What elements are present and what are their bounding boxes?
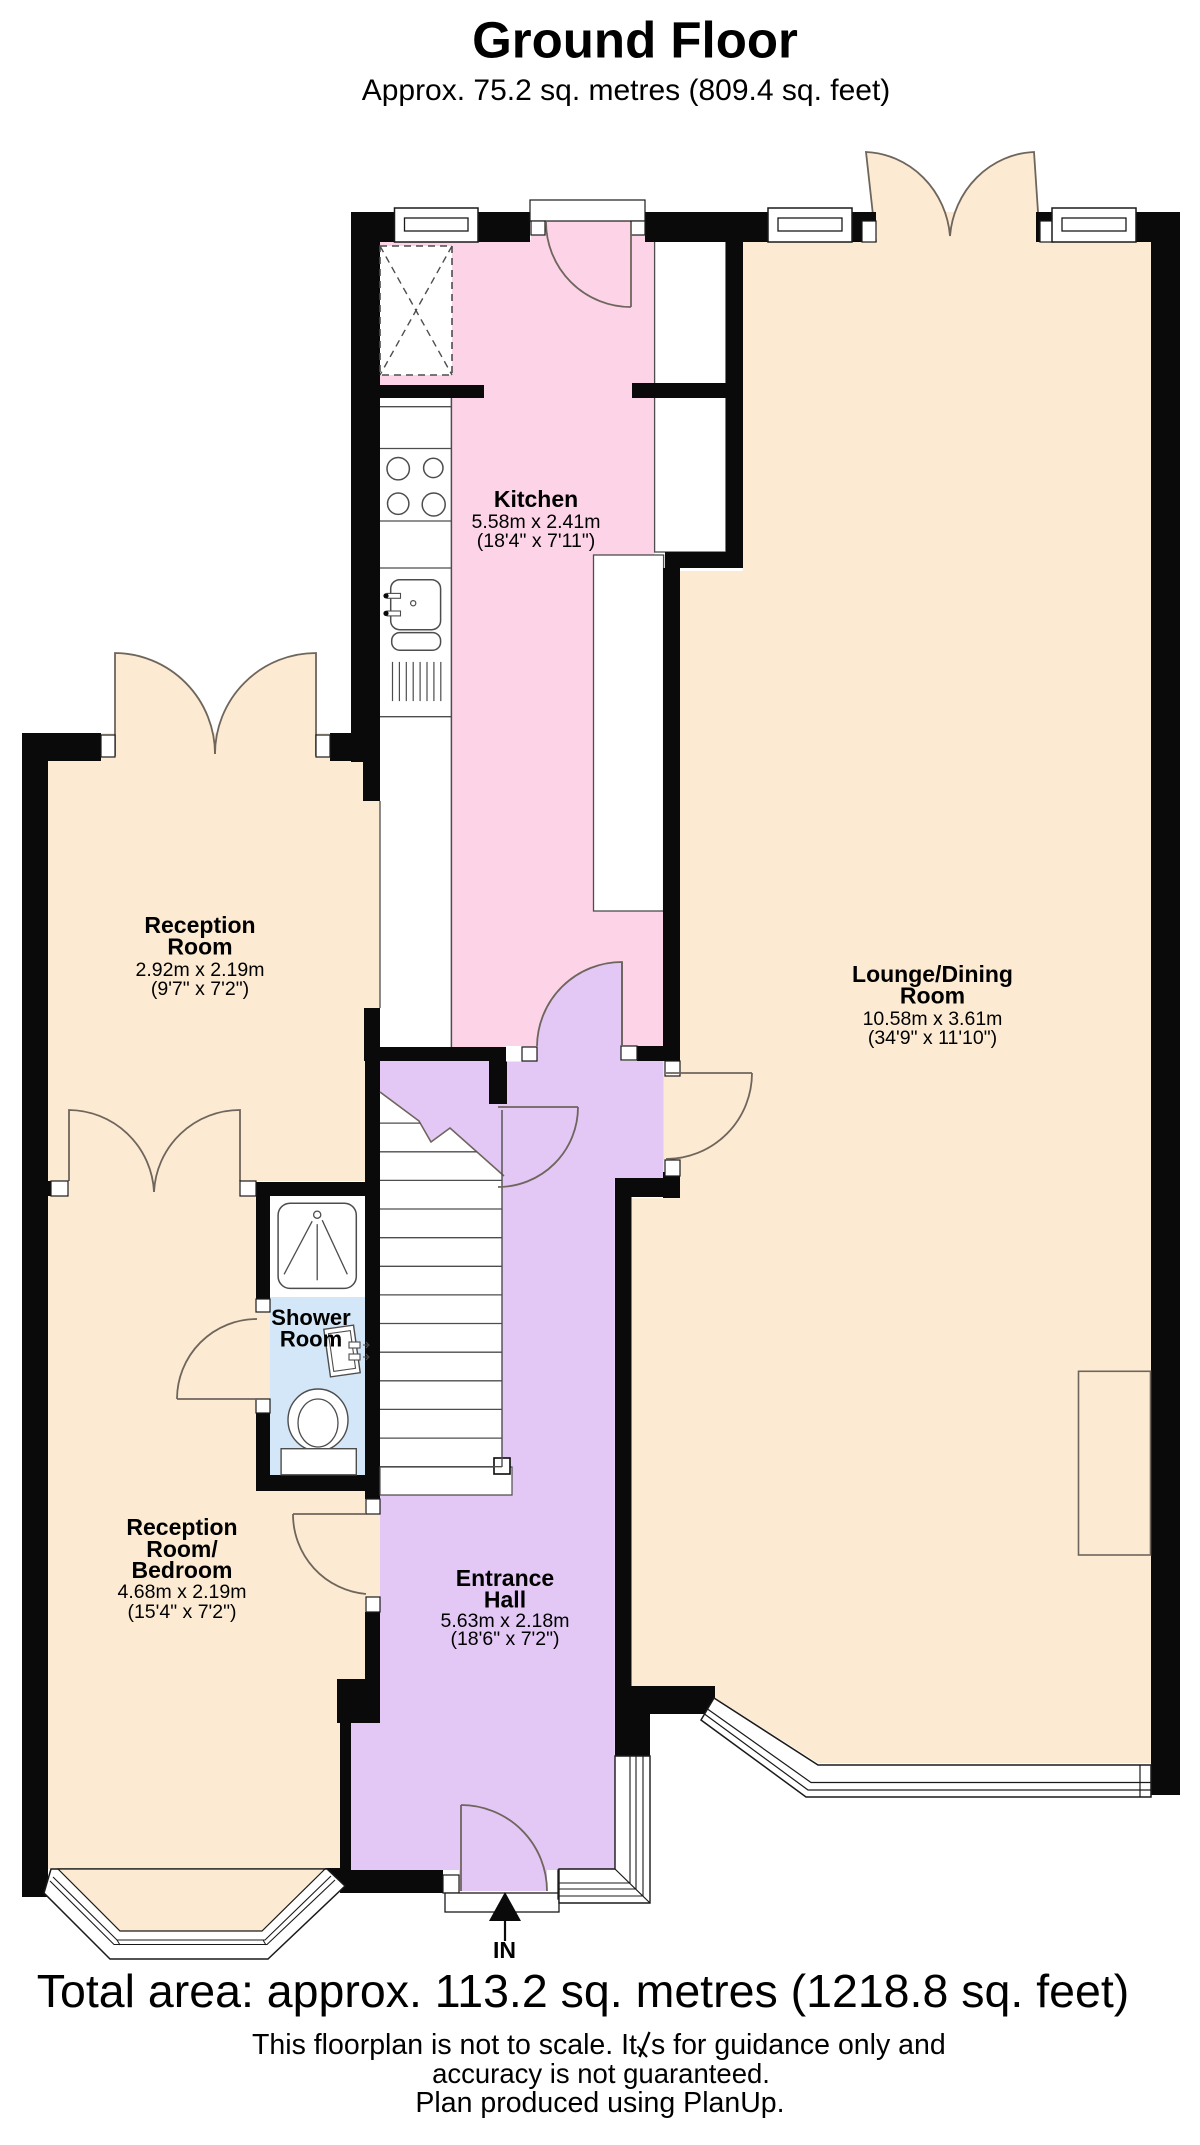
svg-text:Ground Floor: Ground Floor <box>472 12 798 69</box>
svg-text:accuracy is not guaranteed.: accuracy is not guaranteed. <box>432 2058 770 2089</box>
svg-text:Hall: Hall <box>484 1587 526 1613</box>
svg-text:Plan produced using PlanUp.: Plan produced using PlanUp. <box>415 2087 784 2119</box>
svg-text:Room: Room <box>900 983 965 1009</box>
svg-text:(18'4" x 7'11"): (18'4" x 7'11") <box>477 530 596 552</box>
svg-text:(18'6" x 7'2"): (18'6" x 7'2") <box>450 1628 559 1650</box>
svg-text:Room: Room <box>167 934 232 960</box>
svg-text:IN: IN <box>493 1937 516 1963</box>
svg-text:(15'4" x 7'2"): (15'4" x 7'2") <box>127 1601 236 1623</box>
svg-text:(9'7" x 7'2"): (9'7" x 7'2") <box>151 978 249 1000</box>
svg-text:Bedroom: Bedroom <box>132 1557 233 1583</box>
svg-text:Kitchen: Kitchen <box>494 486 578 512</box>
svg-text:Approx. 75.2 sq. metres (809.4: Approx. 75.2 sq. metres (809.4 sq. feet) <box>362 74 891 107</box>
svg-text:s for guidance only and: s for guidance only and <box>651 2029 946 2061</box>
svg-text:(34'9" x 11'10"): (34'9" x 11'10") <box>868 1027 997 1049</box>
svg-text:This floorplan is not to scale: This floorplan is not to scale. It <box>252 2029 637 2061</box>
svg-text:4.68m x 2.19m: 4.68m x 2.19m <box>118 1581 247 1603</box>
svg-text:Total area: approx. 113.2 sq.: Total area: approx. 113.2 sq. metres (12… <box>37 1965 1130 2017</box>
svg-text:Room: Room <box>280 1327 342 1352</box>
